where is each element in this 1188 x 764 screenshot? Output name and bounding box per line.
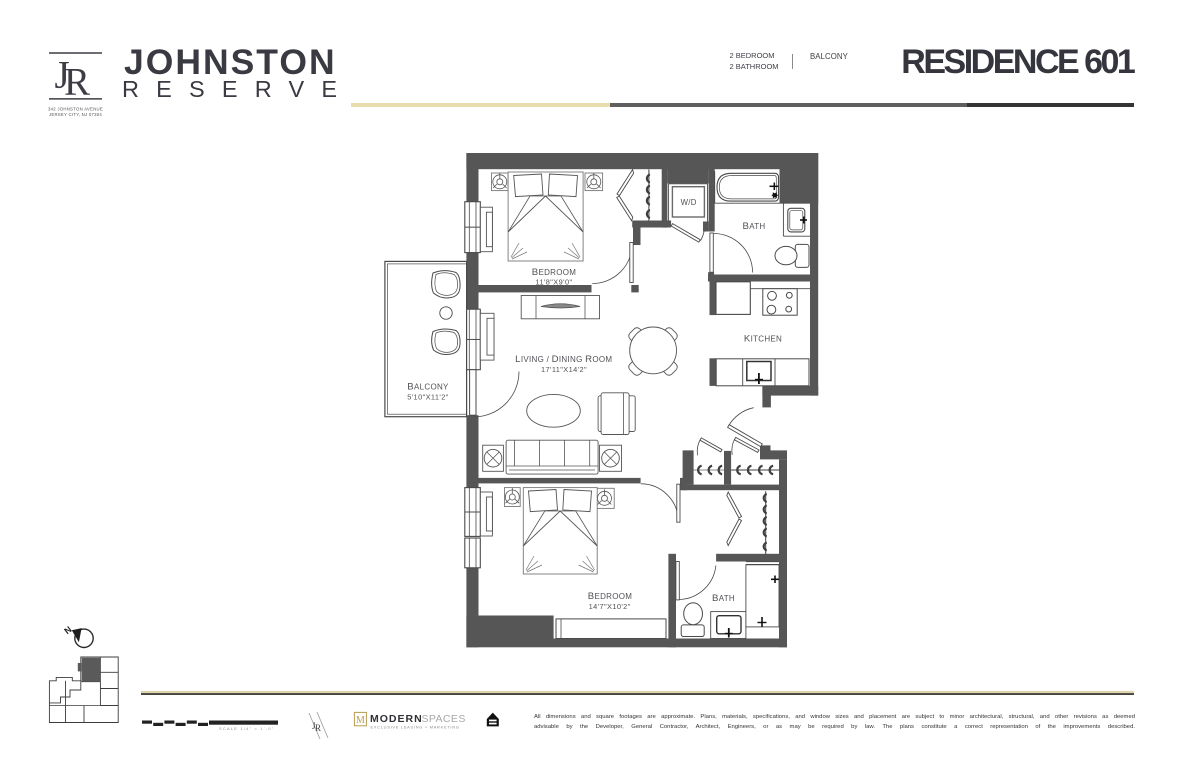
svg-text:BALCONY: BALCONY xyxy=(407,382,449,393)
svg-text:11'8"X9'0": 11'8"X9'0" xyxy=(535,277,572,286)
svg-text:SPACES: SPACES xyxy=(422,713,466,725)
svg-text:SCALE 1/4" = 1'-0": SCALE 1/4" = 1'-0" xyxy=(219,726,274,731)
svg-text:KITCHEN: KITCHEN xyxy=(744,334,782,345)
svg-text:N: N xyxy=(62,624,73,636)
svg-text:MODERN: MODERN xyxy=(370,713,423,725)
svg-text:LIVING / DINING ROOM: LIVING / DINING ROOM xyxy=(515,354,612,365)
svg-text:EXCLUSIVE LEASING + MARKETING: EXCLUSIVE LEASING + MARKETING xyxy=(371,725,460,730)
svg-text:R: R xyxy=(315,723,321,733)
svg-text:M: M xyxy=(356,715,365,726)
svg-text:BEDROOM: BEDROOM xyxy=(532,267,577,278)
svg-text:W/D: W/D xyxy=(681,198,697,207)
svg-text:5'10"X11'2": 5'10"X11'2" xyxy=(407,393,449,402)
svg-text:BATH: BATH xyxy=(742,221,765,232)
svg-text:17'11"X14'2": 17'11"X14'2" xyxy=(541,365,587,374)
